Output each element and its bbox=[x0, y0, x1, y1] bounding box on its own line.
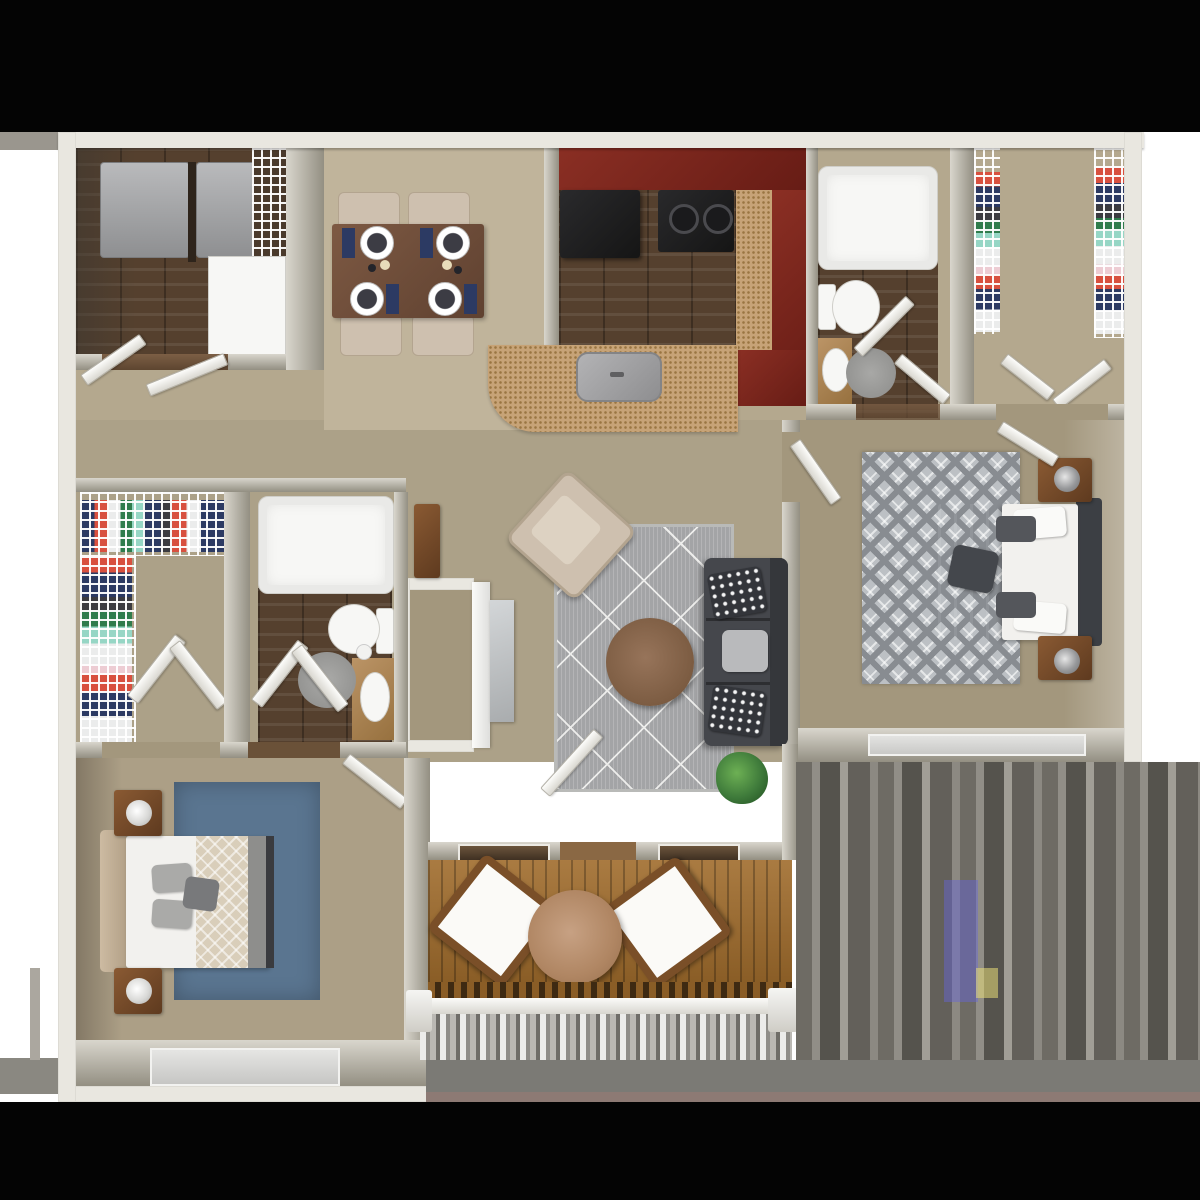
master-lamp bbox=[1054, 648, 1080, 674]
bedroom-2 bbox=[76, 758, 404, 1042]
kitchen-left-wall bbox=[544, 132, 559, 345]
lower-right-cabinet bbox=[736, 350, 806, 406]
kitchen-bath-wall bbox=[806, 132, 818, 424]
balcony bbox=[428, 860, 792, 1010]
placemat bbox=[464, 284, 477, 314]
sofa-pillow-patterned bbox=[706, 566, 767, 621]
patio-table bbox=[528, 890, 622, 984]
linen-cabinet bbox=[414, 504, 440, 578]
kitchen-sink bbox=[576, 352, 662, 402]
candle bbox=[380, 260, 390, 270]
render-smear-right bbox=[796, 762, 1200, 1060]
walk-in-closet-1 bbox=[974, 148, 1124, 420]
bath2-sink bbox=[360, 672, 390, 722]
master-window bbox=[868, 734, 1086, 756]
place-setting-plate bbox=[350, 282, 384, 316]
bedroom2-footboard-edge bbox=[266, 836, 274, 968]
bath2-right-wall bbox=[394, 492, 408, 758]
walk-in-closet-2 bbox=[76, 492, 224, 742]
washer-dryer-gap bbox=[188, 162, 196, 262]
bottom-letterbox-bar bbox=[0, 1102, 1200, 1200]
closet2-bath2-wall bbox=[224, 492, 250, 758]
place-setting-plate bbox=[428, 282, 462, 316]
exterior-wall-right bbox=[1124, 132, 1142, 762]
master-bedroom bbox=[800, 420, 1124, 736]
bedroom2-accent-pillow bbox=[182, 876, 220, 912]
sofa-pillow-gray bbox=[722, 630, 768, 672]
placemat bbox=[420, 228, 433, 258]
midleft-top-wall bbox=[58, 478, 406, 492]
glassware bbox=[454, 266, 462, 274]
exterior-wall-top bbox=[58, 132, 1144, 148]
burner bbox=[669, 204, 699, 234]
wall-seg bbox=[1108, 404, 1124, 420]
render-smear-band-mauve bbox=[426, 1092, 1200, 1102]
master-wall-seg bbox=[782, 420, 800, 432]
bath1-closet-wall bbox=[950, 132, 974, 422]
master-pillow-dark bbox=[996, 592, 1036, 618]
bathtub-2 bbox=[258, 496, 394, 594]
sofa-pillow-patterned bbox=[707, 684, 767, 737]
wall-seg bbox=[806, 404, 856, 420]
placemat bbox=[386, 284, 399, 314]
toilet-bowl bbox=[832, 280, 880, 334]
dining-chair bbox=[340, 314, 402, 356]
nook-wall-bottom bbox=[398, 740, 474, 752]
railing-post-left bbox=[406, 990, 432, 1032]
faucet bbox=[610, 372, 624, 377]
candle bbox=[442, 260, 452, 270]
bedroom2-lamp bbox=[126, 978, 152, 1004]
washer bbox=[100, 162, 190, 258]
place-setting-plate bbox=[360, 226, 394, 260]
refrigerator bbox=[560, 190, 640, 258]
closet1-wire-shelf-right bbox=[1094, 148, 1124, 338]
coffee-table bbox=[606, 618, 694, 706]
bath1-threshold bbox=[856, 404, 940, 420]
master-lamp bbox=[1054, 466, 1080, 492]
wall-seg bbox=[940, 404, 996, 420]
place-setting-plate bbox=[436, 226, 470, 260]
dining-chair bbox=[412, 314, 474, 356]
burner bbox=[703, 204, 733, 234]
render-smear-left-stripe bbox=[30, 968, 40, 1060]
closet1-opening bbox=[996, 404, 1108, 420]
laundry-bottom-wall-b bbox=[228, 354, 286, 370]
right-counter bbox=[736, 190, 772, 350]
floor-plan-canvas bbox=[0, 0, 1200, 1200]
master-headboard bbox=[1076, 498, 1102, 646]
toilet-paper-roll bbox=[356, 644, 372, 660]
closet1-wire-shelf-left bbox=[974, 148, 1000, 334]
bottom-left-outer-trim bbox=[58, 1086, 444, 1102]
balcony-balusters bbox=[420, 1014, 792, 1060]
bathroom-2 bbox=[250, 492, 394, 742]
placemat bbox=[342, 228, 355, 258]
railing-post-right bbox=[768, 988, 798, 1032]
sofa-backrest bbox=[770, 558, 788, 746]
render-smear-left-block bbox=[0, 1058, 58, 1094]
bedroom2-headboard bbox=[100, 830, 126, 972]
bedroom2-window bbox=[150, 1048, 340, 1086]
glassware bbox=[368, 264, 376, 272]
bath2-opening bbox=[248, 742, 340, 758]
wall-seg bbox=[220, 742, 248, 758]
water-heater-closet bbox=[208, 256, 286, 356]
exterior-wall-left bbox=[58, 132, 76, 1102]
laundry-right-wall bbox=[286, 148, 324, 370]
marble-fireplace-panel bbox=[490, 600, 514, 722]
toilet2-bowl bbox=[328, 604, 380, 654]
bedroom2-lamp bbox=[126, 800, 152, 826]
closet2-door-leaf-b bbox=[169, 640, 228, 710]
potted-plant bbox=[716, 752, 768, 804]
bath1-rug bbox=[846, 348, 896, 398]
balcony-railing-top bbox=[412, 998, 804, 1014]
render-smear-band-gray bbox=[426, 1060, 1200, 1092]
bedroom2-gray-band bbox=[248, 836, 268, 968]
deck-board-ends bbox=[428, 982, 792, 998]
storage-nook-interior bbox=[410, 590, 474, 740]
closet2-wire-shelf-left bbox=[80, 556, 136, 742]
master-pillow-dark bbox=[996, 516, 1036, 542]
top-letterbox-bar bbox=[0, 0, 1200, 132]
laundry-room bbox=[76, 148, 300, 370]
patio-door-threshold bbox=[560, 842, 636, 860]
bathtub bbox=[818, 166, 938, 270]
closet2-opening bbox=[102, 742, 220, 758]
closet2-wire-shelf-top bbox=[80, 492, 228, 556]
media-panel-side bbox=[472, 582, 490, 748]
render-smear-yellow-spot bbox=[976, 968, 998, 998]
render-smear-blue-stripe bbox=[944, 880, 978, 1002]
edge-artifact bbox=[0, 132, 58, 150]
